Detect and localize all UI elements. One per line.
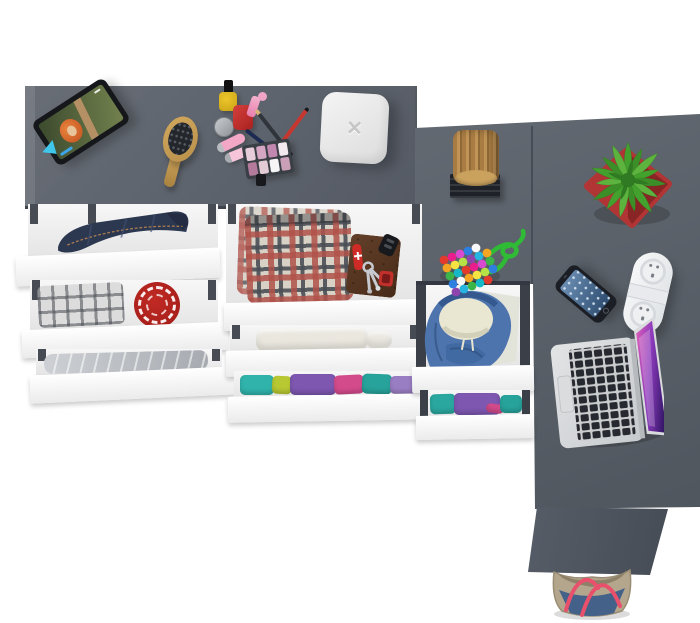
silver-jar: [214, 117, 234, 137]
eyeshadow-pan: [267, 144, 278, 158]
drawer-right-1-front: [412, 365, 534, 393]
white-box: ✕: [319, 91, 390, 164]
dresser-left-edge: [25, 86, 35, 206]
scene: ✕: [0, 0, 700, 623]
plaid-shirt: [37, 282, 125, 328]
black-nail-polish: [256, 174, 266, 186]
drawer-rail: [412, 204, 420, 224]
fob-button: [386, 238, 395, 244]
plaid-shorts: [244, 212, 353, 304]
drawer-rail: [30, 204, 38, 224]
folded-shirt-teal: [240, 375, 274, 395]
fob-button: [384, 244, 393, 250]
drawer-rail: [208, 204, 216, 224]
folded-shirt-teal: [500, 395, 522, 413]
folded-shirt-pink: [334, 374, 365, 395]
lipstick-ball: [258, 92, 267, 101]
eyeshadow-palette: [242, 138, 295, 179]
drawer-middle-3-front: [228, 393, 430, 423]
drawer-side: [420, 390, 428, 418]
eyeshadow-pan: [245, 147, 256, 161]
stump-cut-face: [455, 170, 497, 186]
power-socket: [637, 256, 668, 287]
drawer-middle-1-interior: [226, 204, 422, 306]
towel-fold: [366, 331, 392, 349]
drawer-right-2-front: [416, 414, 534, 440]
eyeshadow-pan: [278, 142, 289, 156]
red-fob: [378, 270, 393, 286]
folded-shirt-teal: [362, 373, 393, 394]
wallet-group: [345, 233, 408, 304]
potted-plant: [572, 122, 680, 234]
drawer-rail: [228, 204, 236, 224]
brush-head: [158, 113, 203, 166]
video-progress-bar: [60, 146, 73, 156]
eyeshadow-pan: [269, 158, 280, 172]
bead-pouch: [428, 220, 528, 298]
wood-stump: [453, 130, 499, 184]
eyeshadow-pan: [280, 157, 291, 171]
brush-bristles: [165, 120, 197, 158]
drawer-rail: [232, 325, 240, 339]
video-ui-chip: [94, 88, 101, 94]
x-mark: ✕: [319, 91, 390, 164]
eyeshadow-pan: [258, 160, 269, 174]
drawer-rail: [208, 280, 216, 300]
laptop: [546, 312, 664, 450]
desk-seam: [531, 126, 533, 284]
tote-bag: [544, 558, 640, 620]
drawer-rail: [212, 349, 220, 361]
folded-shirt-teal: [430, 394, 457, 415]
tee-pattern: [146, 294, 168, 316]
red-fob-center: [382, 274, 391, 284]
red-patterned-tee: [134, 282, 180, 328]
knife-cross: [353, 255, 361, 258]
beads: [440, 244, 498, 297]
eyeshadow-pan: [256, 145, 267, 159]
folded-shirt-purple: [290, 374, 336, 395]
laptop-keyboard: [569, 344, 636, 442]
makeup-cluster: [212, 78, 318, 182]
